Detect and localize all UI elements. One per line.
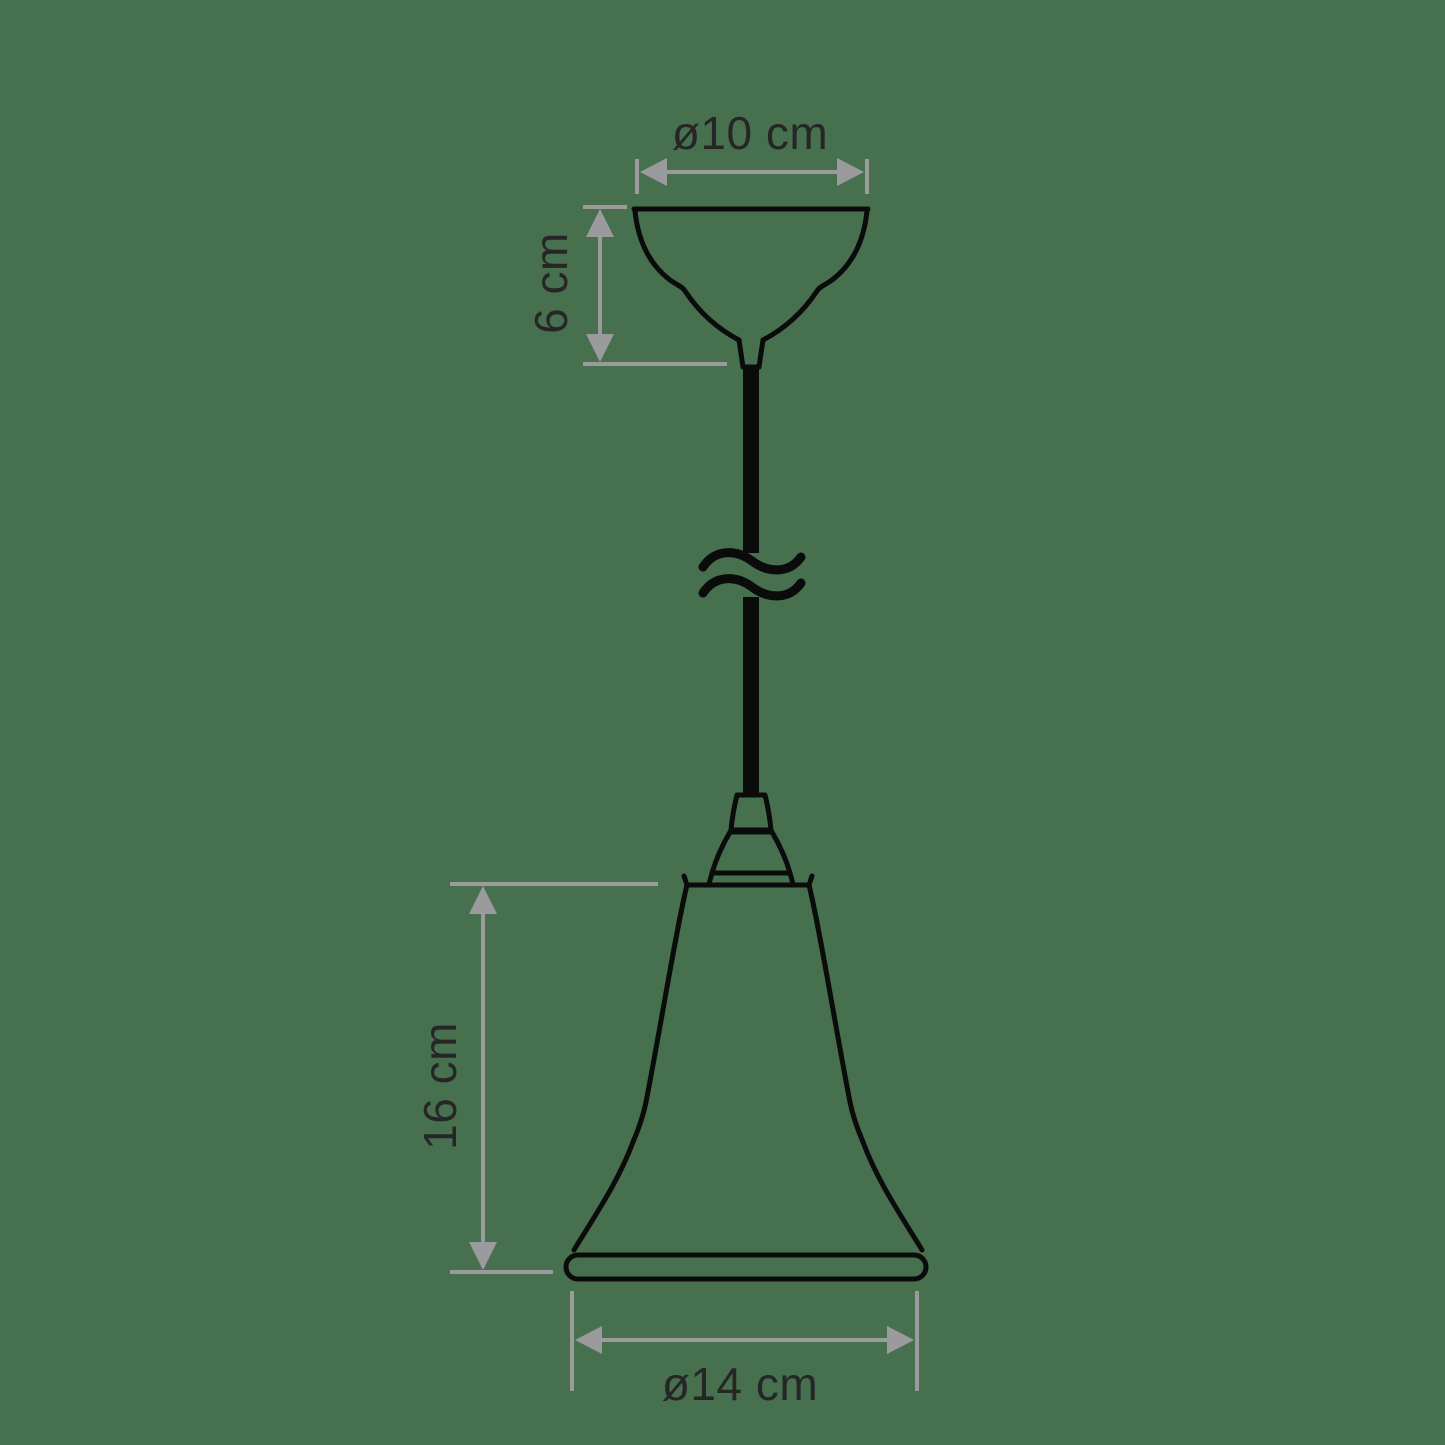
- canopy-height-label: 6 cm: [524, 232, 578, 334]
- arrowhead-right: [887, 1326, 914, 1354]
- cable-upper-segment: [743, 365, 759, 553]
- canopy-diameter-label: ø10 cm: [672, 106, 828, 160]
- arrowhead-down: [469, 1242, 497, 1270]
- shade-bottom-rim: [566, 1255, 926, 1279]
- shade-right-profile: [809, 885, 922, 1250]
- cable-break-wave-top: [703, 553, 801, 570]
- shade-left-profile: [574, 885, 687, 1250]
- ceiling-canopy-outline: [634, 209, 868, 367]
- arrowhead-down: [586, 334, 614, 362]
- canopy-diameter-dimension: [637, 158, 867, 194]
- arrowhead-up: [469, 886, 497, 914]
- diagram-linework: [0, 0, 1445, 1445]
- arrowhead-up: [586, 209, 614, 237]
- arrowhead-left: [640, 158, 667, 186]
- shade-diameter-label: ø14 cm: [662, 1357, 818, 1411]
- arrowhead-right: [837, 158, 864, 186]
- cable-lower-segment: [743, 597, 759, 796]
- cable-break-wave-bottom: [703, 579, 801, 596]
- canopy-right-profile: [763, 211, 867, 340]
- shade-height-label: 16 cm: [413, 1022, 467, 1150]
- lamp-shade-outline: [566, 876, 926, 1279]
- canopy-neck: [739, 340, 763, 367]
- shade-height-dimension: [450, 884, 658, 1272]
- socket-cord-grip: [731, 795, 771, 830]
- canopy-left-profile: [635, 211, 739, 340]
- pendant-lamp-dimension-diagram: ø10 cm 6 cm 16 cm ø14 cm: [0, 0, 1445, 1445]
- canopy-height-dimension: [583, 207, 727, 364]
- suspension-cable: [703, 365, 801, 796]
- lamp-socket-outline: [709, 795, 793, 884]
- socket-body: [712, 832, 790, 873]
- arrowhead-left: [575, 1326, 602, 1354]
